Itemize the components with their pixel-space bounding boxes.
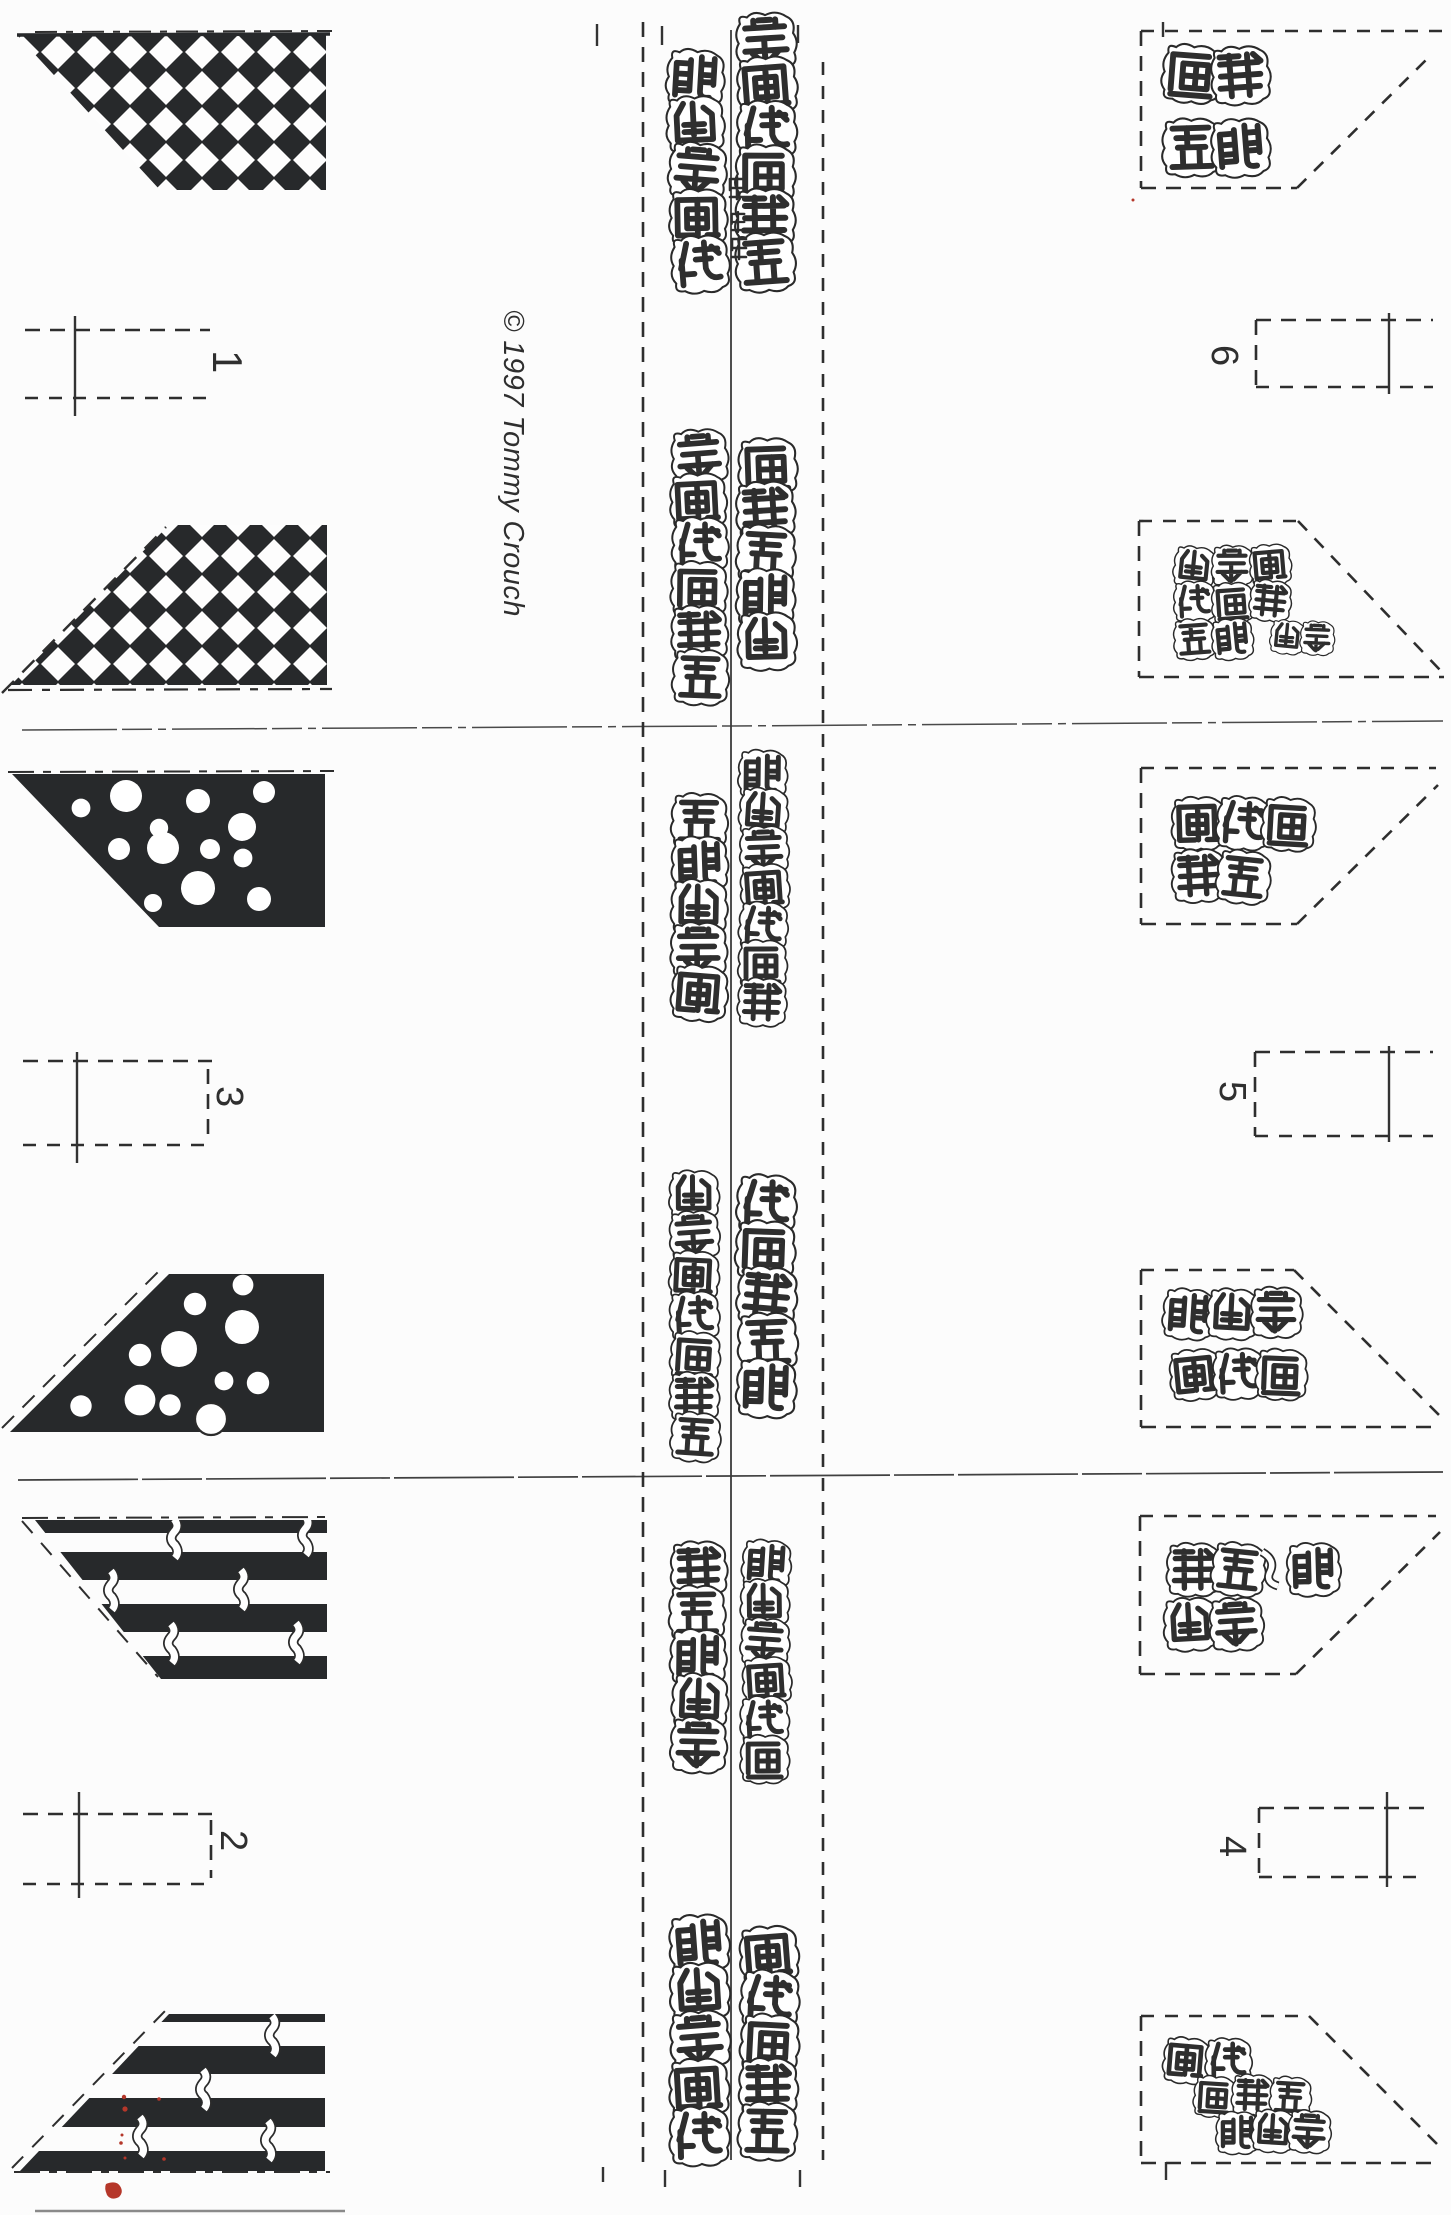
svg-text:6: 6 <box>1203 345 1245 366</box>
svg-text:5: 5 <box>1211 1081 1253 1102</box>
svg-text:4: 4 <box>1211 1836 1253 1857</box>
svg-text:1: 1 <box>204 350 251 373</box>
svg-text:© 1997 Tommy Crouch: © 1997 Tommy Crouch <box>497 310 529 617</box>
svg-text:3: 3 <box>208 1086 250 1107</box>
svg-text:2: 2 <box>212 1830 254 1851</box>
